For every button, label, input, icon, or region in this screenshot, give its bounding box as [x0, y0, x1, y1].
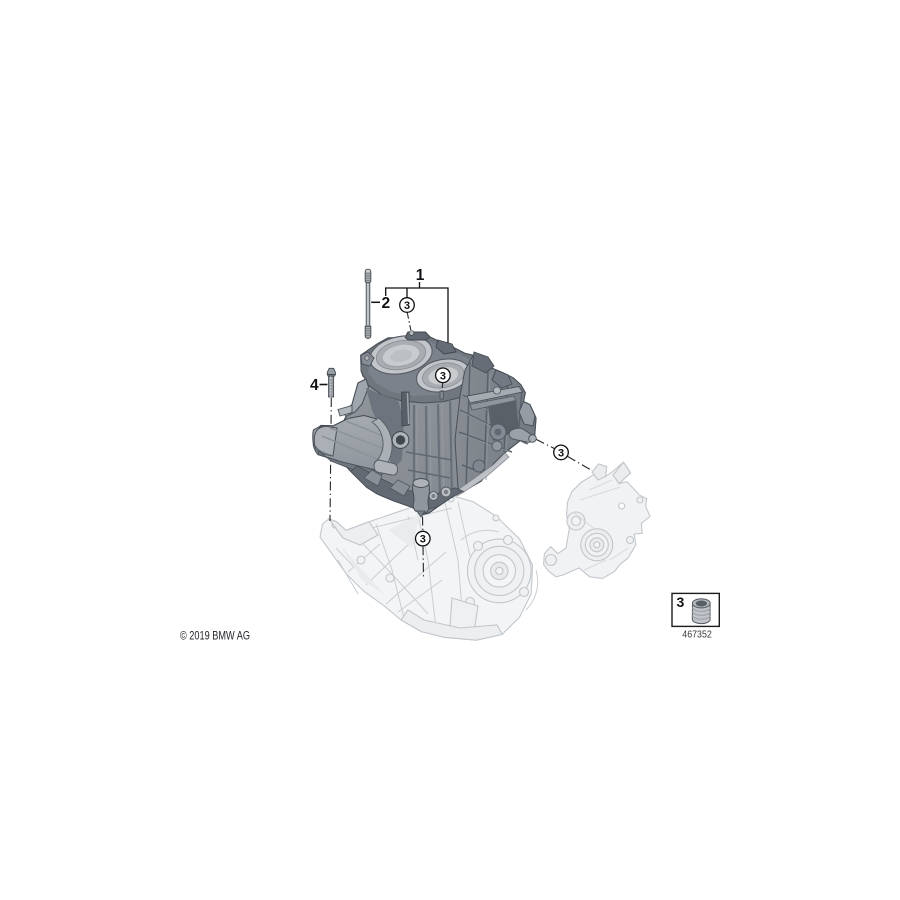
svg-text:3: 3	[420, 534, 426, 546]
svg-text:467352: 467352	[682, 630, 712, 641]
svg-text:© 2019 BMW AG: © 2019 BMW AG	[180, 629, 250, 643]
svg-text:3: 3	[558, 447, 564, 459]
svg-text:2: 2	[382, 295, 391, 312]
svg-text:1: 1	[416, 267, 425, 284]
svg-text:3: 3	[677, 594, 685, 610]
svg-text:4: 4	[310, 377, 319, 394]
svg-text:3: 3	[404, 300, 410, 312]
svg-text:3: 3	[440, 370, 446, 382]
